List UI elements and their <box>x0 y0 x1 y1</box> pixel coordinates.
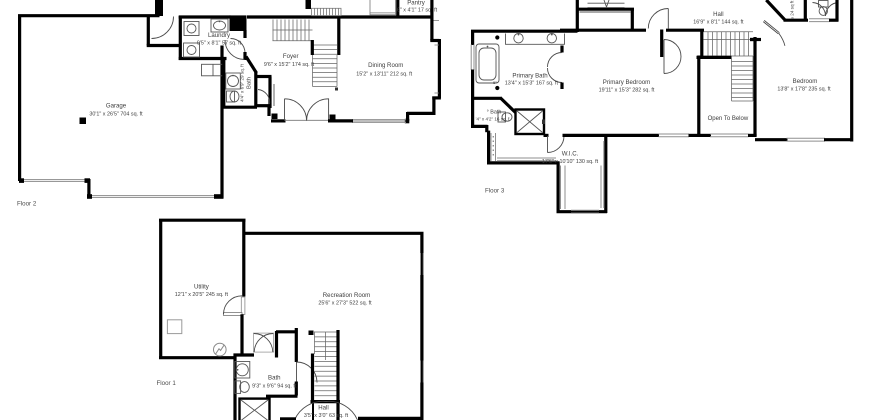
svg-text:Primary Bedroom: Primary Bedroom <box>603 79 650 86</box>
svg-text:Hall: Hall <box>713 11 724 18</box>
svg-text:Utility: Utility <box>194 284 210 291</box>
svg-text:Foyer: Foyer <box>283 53 299 60</box>
svg-text:Recreation Room: Recreation Room <box>323 292 370 299</box>
svg-text:Garage: Garage <box>106 103 127 110</box>
svg-text:19'11" x 15'3" 282 sq. ft: 19'11" x 15'3" 282 sq. ft <box>599 88 655 94</box>
svg-text:25'6" x 27'3" 522 sq. ft: 25'6" x 27'3" 522 sq. ft <box>318 301 372 307</box>
svg-text:30'1" x 26'5" 704 sq. ft: 30'1" x 26'5" 704 sq. ft <box>89 112 143 118</box>
svg-text:13'8" x 17'8" 235 sq. ft: 13'8" x 17'8" 235 sq. ft <box>777 87 831 93</box>
svg-text:Hall: Hall <box>318 405 329 412</box>
svg-text:Floor 2: Floor 2 <box>17 201 37 208</box>
svg-text:° Bath: ° Bath <box>487 110 502 116</box>
svg-text:Floor 1: Floor 1 <box>157 380 177 387</box>
svg-text:9'5" x 8'1" 57 sq. ft: 9'5" x 8'1" 57 sq. ft <box>197 40 242 46</box>
svg-text:4'4" x 6'9" 29 sq. ft: 4'4" x 6'9" 29 sq. ft <box>240 63 245 101</box>
svg-text:Primary Bath: Primary Bath <box>512 73 547 80</box>
svg-text:13'4" x 15'3" 167 sq. ft: 13'4" x 15'3" 167 sq. ft <box>505 81 559 87</box>
svg-text:Open To Below: Open To Below <box>708 116 749 122</box>
svg-text:3'5" x 3'0" 63 sq. ft: 3'5" x 3'0" 63 sq. ft <box>304 413 349 419</box>
svg-text:16'9" x 8'1" 144 sq. ft: 16'9" x 8'1" 144 sq. ft <box>693 20 744 26</box>
svg-text:9'3" x 9'6" 94 sq. ft: 9'3" x 9'6" 94 sq. ft <box>252 384 297 390</box>
svg-text:Pantry: Pantry <box>407 0 426 7</box>
svg-text:s 24 sq ft: s 24 sq ft <box>790 0 795 19</box>
svg-text:5°: 5° <box>493 80 497 85</box>
svg-text:12'1" x 20'5" 245 sq. ft: 12'1" x 20'5" 245 sq. ft <box>175 292 229 298</box>
svg-text:Dining Room: Dining Room <box>368 62 403 69</box>
svg-text:15'2" x 13'11" 212 sq. ft: 15'2" x 13'11" 212 sq. ft <box>356 72 412 78</box>
svg-text:'4" x 4'2" 16 sq. f: '4" x 4'2" 16 sq. f <box>476 117 511 122</box>
svg-text:W.I.C.: W.I.C. <box>562 151 579 158</box>
svg-text:Bedroom: Bedroom <box>793 78 818 85</box>
svg-text:9'6" x 15'2" 174 sq. ft: 9'6" x 15'2" 174 sq. ft <box>264 62 315 68</box>
svg-text:Bath: Bath <box>268 375 281 382</box>
svg-text:Bath: Bath <box>247 77 253 89</box>
svg-text:Floor 3: Floor 3 <box>485 188 505 195</box>
svg-text:Laundry: Laundry <box>208 32 231 39</box>
svg-text:17'6" x 10'10" 130 sq. ft: 17'6" x 10'10" 130 sq. ft <box>542 159 599 165</box>
